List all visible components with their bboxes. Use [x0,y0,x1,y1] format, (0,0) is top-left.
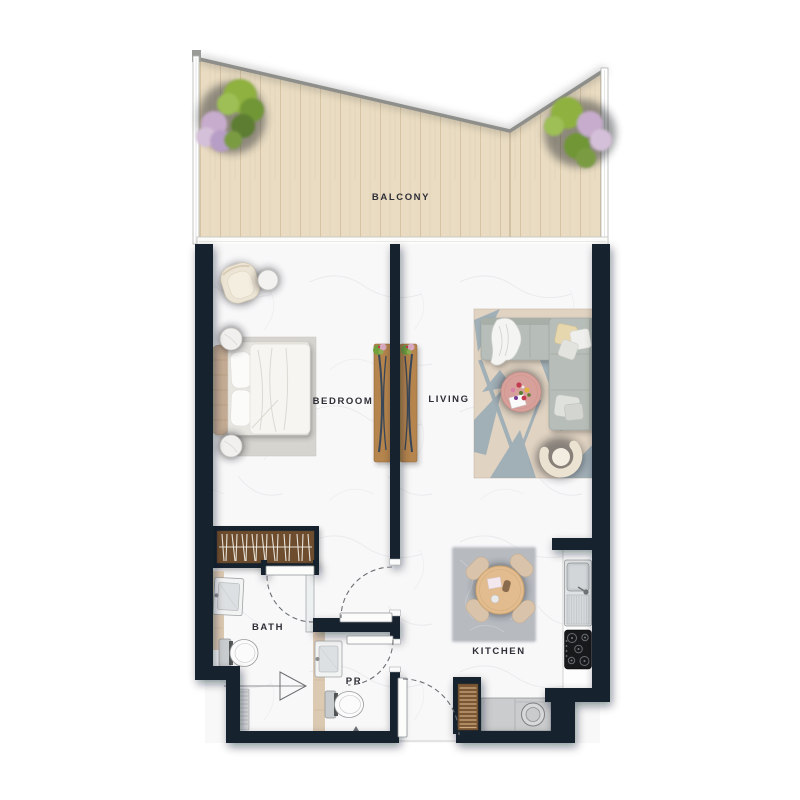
kitchen-counter [563,549,593,689]
floor-plan-canvas: BALCONY BEDROOM LIVING BATH PR KITCHEN [0,0,800,800]
table-cup [491,595,499,603]
stove [565,630,592,669]
balcony [192,50,608,246]
living-armchair [536,437,584,479]
bath-sink [213,577,244,615]
bedroom-door-leaf [340,613,392,622]
wall-kitchen-niche-top [552,538,594,550]
balcony-floor [199,59,606,243]
bed [211,342,310,435]
balcony-label: BALCONY [372,192,430,203]
bath-toilet [219,639,258,667]
kitchen-sink [565,560,592,626]
floor-plan: BALCONY BEDROOM LIVING BATH PR KITCHEN [0,0,800,800]
pr-sink [315,641,342,677]
balcony-left-rail [193,56,199,244]
sofa-cushion [564,403,584,421]
wall-divider [390,244,400,345]
coffee-table [499,370,543,414]
shoe-rack [458,684,478,730]
nightstand-top [218,326,244,352]
wall-left [195,244,213,680]
wall-divider [390,463,400,565]
pr-toilet [325,691,364,718]
wall-washer-block [551,701,575,743]
entry-door-leaf [398,678,407,737]
dining-table [476,566,524,614]
pillow [230,352,252,389]
bedroom-side-table [256,268,280,292]
kitchen-label: KITCHEN [472,646,525,657]
pr-label: PR [346,676,362,687]
bedroom-label: BEDROOM [313,396,374,407]
wall-bottom-left [226,731,399,743]
bath-door-leaf [266,566,314,575]
bath-label: BATH [252,622,284,633]
living-label: LIVING [428,394,469,405]
pr-door-leaf [347,636,393,644]
wall-divider [390,345,400,463]
laundry-counter [481,698,551,731]
pillow [230,390,251,427]
wall-right [592,244,610,696]
nightstand-bottom [218,433,244,459]
table-card [487,577,502,589]
